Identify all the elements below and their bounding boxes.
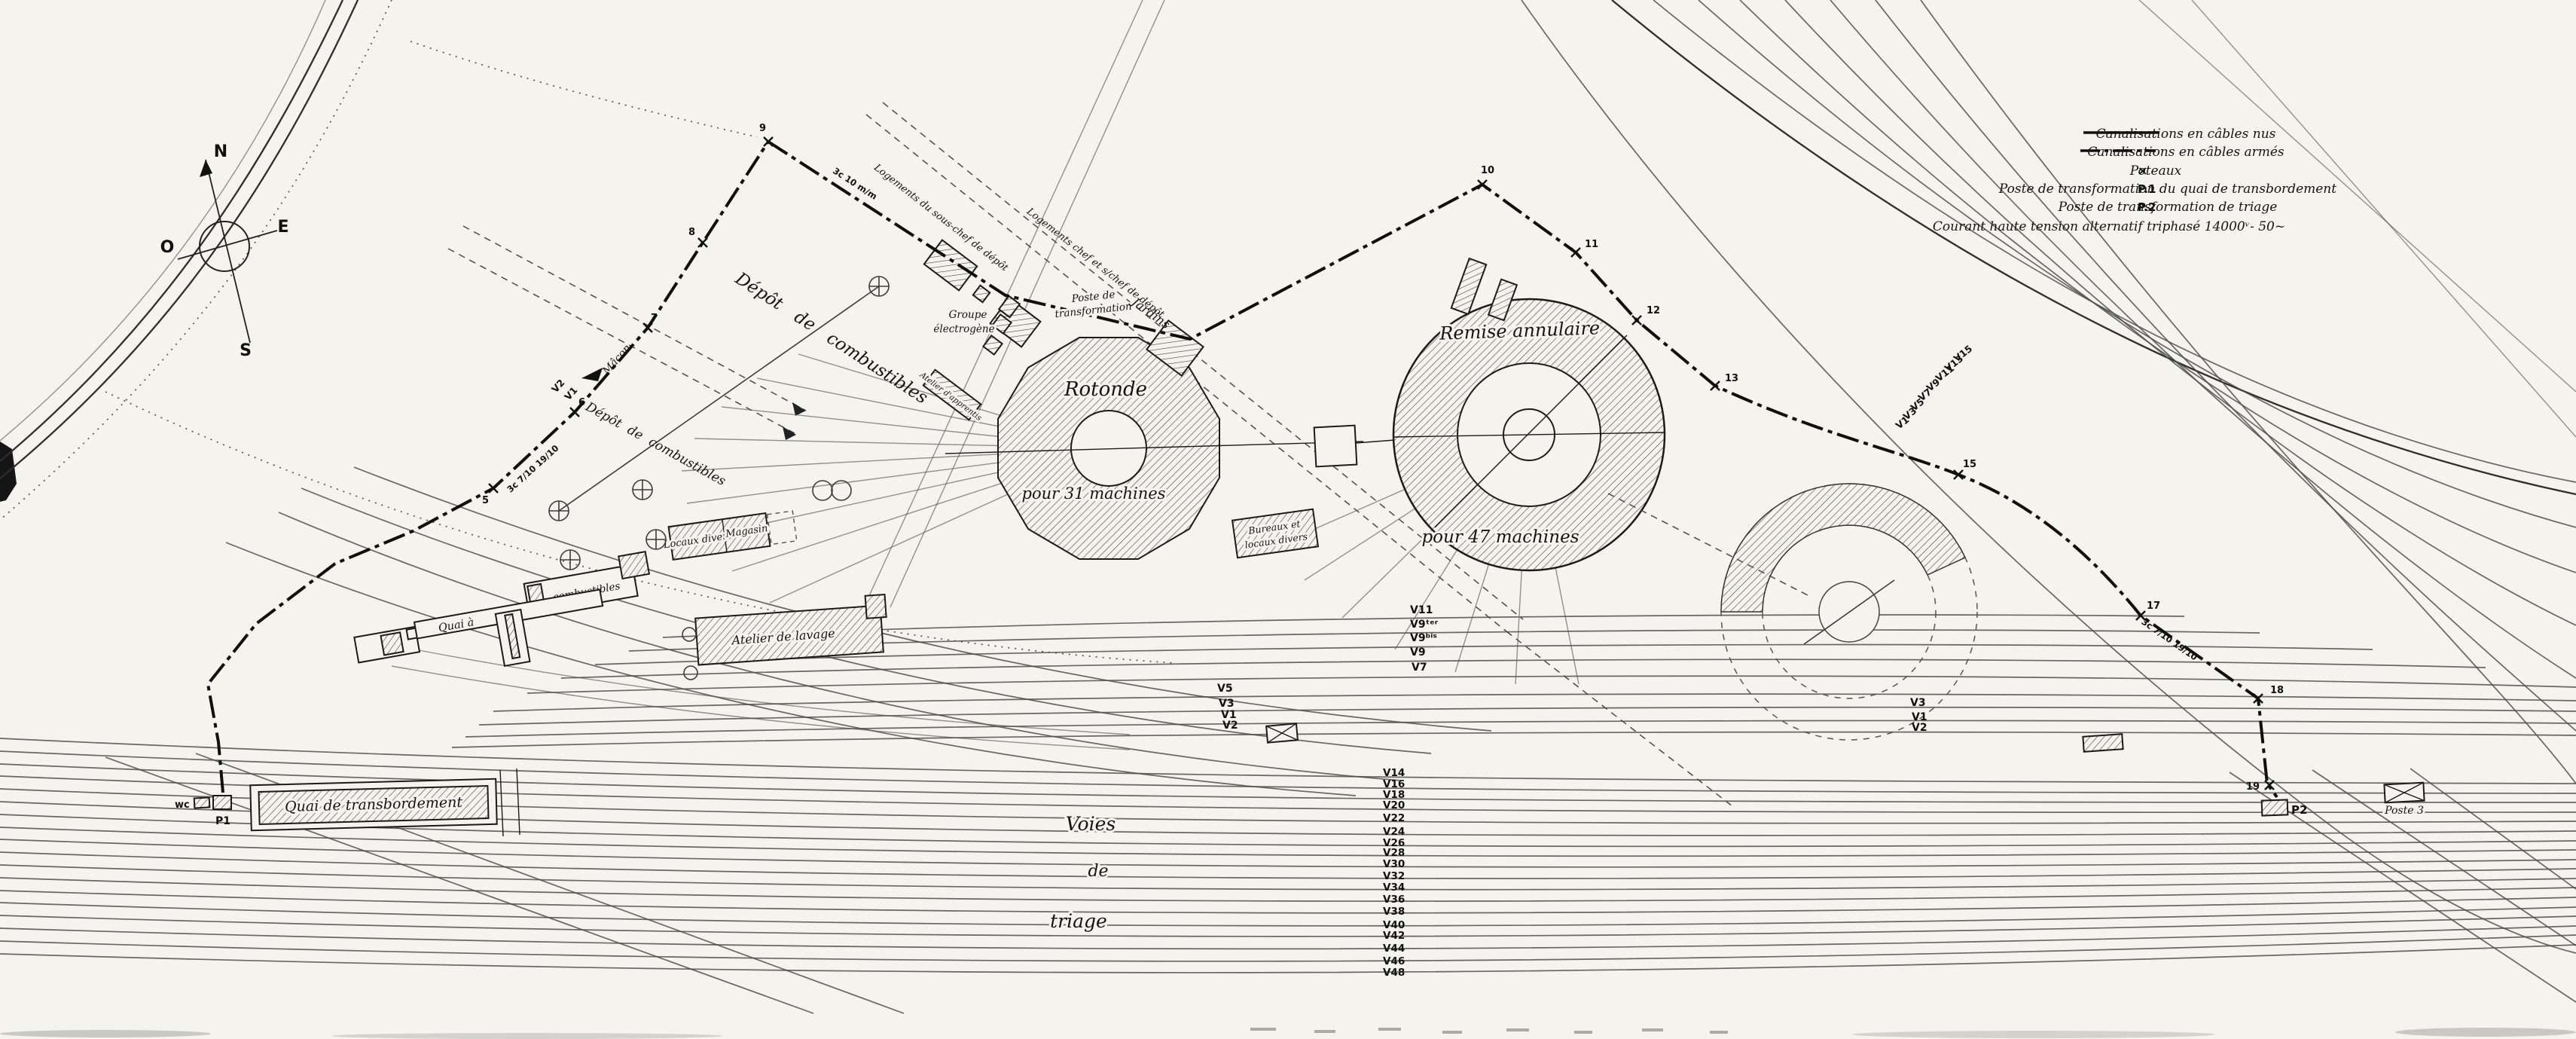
legend-note: Courant haute tension alternatif triphas… — [1933, 219, 2285, 234]
track-number: V44 — [1383, 943, 1405, 955]
macon-direction-label: Mâcon — [600, 342, 633, 377]
track-number: V28 — [1383, 847, 1405, 859]
track-number: V9ᵇⁱˢ — [1410, 632, 1437, 644]
poste-3-label: Poste 3 — [2384, 805, 2424, 817]
compass-east: E — [277, 218, 288, 237]
cable-spec-label: 3c 7/10 19/10 — [505, 443, 560, 495]
pole-number: 19 — [2246, 781, 2260, 793]
voies-triage-label-1: Voies — [1066, 813, 1116, 835]
scanned-depot-plan: Atelier d'apprentis Bureaux et locaux di… — [0, 0, 2576, 1039]
track-number: V5 — [1217, 683, 1233, 695]
misc-building — [2083, 734, 2123, 752]
logements-annex — [973, 286, 990, 302]
compass-north: N — [214, 142, 227, 161]
pole-number: 13 — [1725, 373, 1738, 384]
voies-triage-label-3: triage — [1050, 910, 1107, 932]
pole-number: 17 — [2147, 600, 2160, 612]
combustibles-annex — [618, 552, 649, 579]
pole-number: 12 — [1647, 305, 1660, 316]
depot-combustibles-label: Dépôt de combustibles — [582, 399, 728, 490]
groupe-electrogene-label-1: Groupe — [949, 309, 987, 321]
rotonde-label: Rotonde — [1064, 378, 1147, 401]
pole-number: 10 — [1481, 165, 1494, 176]
poste-depot-label-2: transformation — [1055, 301, 1133, 321]
track-number: V14 — [1383, 767, 1405, 779]
poste-transformation-depot-box — [983, 335, 1002, 354]
track-number: V38 — [1383, 906, 1405, 918]
track-number: V7 — [1412, 662, 1427, 674]
track-number: V11 — [1410, 604, 1433, 616]
p2-label: P2 — [2291, 803, 2307, 817]
track-number: V3 — [1910, 697, 1926, 709]
legend-item-label: Canalisations en câbles armés — [2087, 145, 2285, 160]
legend: Canalisations en câbles nus Canalisation… — [1933, 127, 2336, 234]
legend-item-label: Poteaux — [2129, 163, 2182, 179]
magasin-extension — [768, 511, 797, 544]
pole-number: 9 — [759, 123, 766, 134]
rotonde-roundhouse — [682, 338, 1395, 603]
pole-number: 11 — [1585, 239, 1598, 250]
rotonde-capacity-label: pour 31 machines — [1022, 484, 1166, 503]
track-number: V22 — [1383, 812, 1405, 824]
plan-canvas: Atelier d'apprentis Bureaux et locaux di… — [0, 0, 2576, 1039]
compass-south: S — [240, 341, 252, 360]
legend-item-label: Canalisations en câbles nus — [2096, 127, 2276, 142]
track-number: V30 — [1383, 858, 1405, 870]
track-number: V46 — [1383, 955, 1405, 967]
pole-number: 15 — [1963, 459, 1976, 470]
track-number: V48 — [1383, 967, 1405, 979]
track-number: V2 — [1912, 722, 1927, 734]
p2-transformer-box — [2262, 799, 2288, 815]
pole-number: 5 — [482, 495, 489, 506]
remise-chimney — [1451, 258, 1486, 314]
track-number: V9ᵗᵉʳ — [1410, 619, 1439, 631]
rotated-track-label-v1: V1 — [562, 384, 579, 402]
buildings: Atelier d'apprentis Bureaux et locaux di… — [194, 240, 2425, 836]
north-arrow-icon — [200, 160, 212, 177]
pole-number: 8 — [688, 227, 695, 238]
legend-item-label: Poste de transformation du quai de trans… — [1998, 182, 2336, 197]
track-number: V20 — [1383, 799, 1405, 811]
p1-transformer-box — [213, 796, 231, 809]
voies-triage-label-2: de — [1088, 862, 1108, 881]
pole-number: 7 — [651, 313, 658, 324]
pole-number: 18 — [2270, 685, 2284, 696]
track-number: V9 — [1410, 646, 1426, 659]
pole-number: 6 — [578, 397, 585, 408]
track-number: V2 — [1222, 720, 1238, 732]
p1-label: P1 — [215, 815, 230, 827]
groupe-electrogene-label-2: électrogène — [933, 323, 994, 335]
track-number: V3 — [1219, 698, 1235, 710]
compass-west: O — [160, 238, 175, 257]
track-number: V36 — [1383, 894, 1405, 906]
track-number: V34 — [1383, 882, 1405, 894]
wc-label: wc — [175, 799, 190, 811]
macon-arrow-icon — [581, 368, 603, 381]
track-number: V42 — [1383, 930, 1405, 942]
legend-item-label: Poste de transformation de triage — [2058, 200, 2278, 215]
cable-spec-label: 3c 7/10 19/10 — [2140, 616, 2200, 663]
remise-capacity-label: pour 47 machines — [1421, 527, 1579, 547]
wc-building — [194, 797, 210, 808]
track-number: V32 — [1383, 870, 1405, 882]
rotonde-entrance — [1314, 426, 1357, 467]
track-number: V24 — [1383, 826, 1405, 838]
